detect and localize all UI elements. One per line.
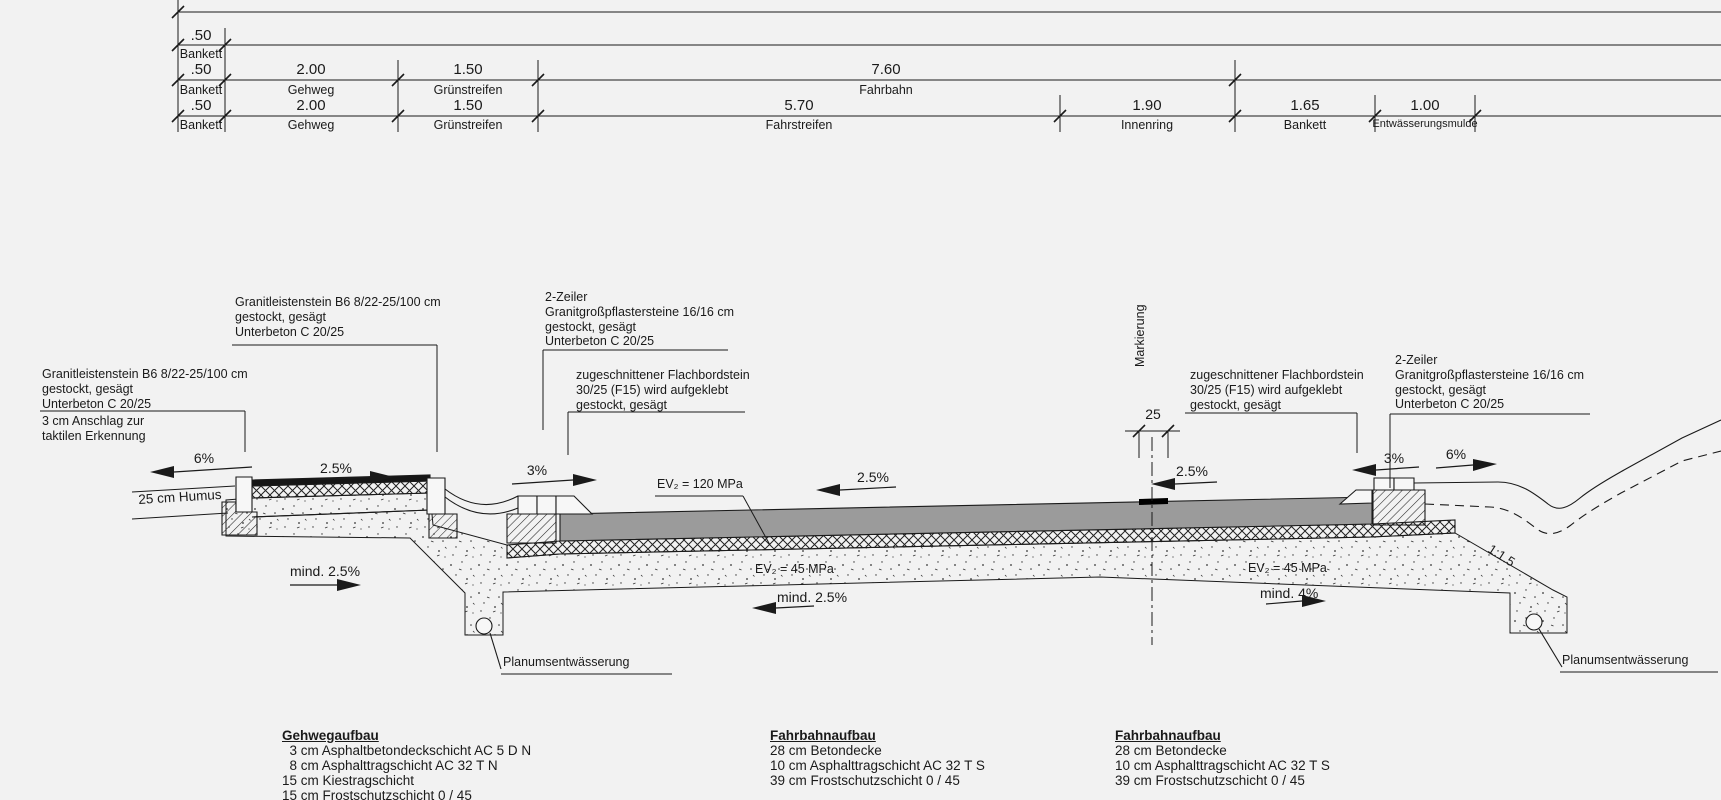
dim-value: 5.70: [784, 97, 813, 114]
dim-label: Bankett: [180, 83, 222, 97]
slope-right-bord: 3%: [1384, 450, 1404, 466]
slope-right-bankett: 6%: [1446, 446, 1466, 462]
dim-value: 1.50: [453, 97, 482, 114]
dim-value: .50: [191, 27, 212, 44]
buildup-fahrbahn-2: Fahrbahnaufbau28 cm Betondecke 10 cm Asp…: [1115, 699, 1330, 800]
dim-label: Grünstreifen: [434, 118, 503, 132]
annotation-ev2-45-left: EV₂ = 45 MPa: [755, 562, 834, 577]
slope-left-bankett: 6%: [194, 450, 214, 466]
dim-label: Bankett: [1284, 118, 1326, 132]
dim-label: Innenring: [1121, 118, 1173, 132]
annotation-granit-left-upper: Granitleistenstein B6 8/22-25/100 cm ges…: [235, 295, 441, 339]
dim-value: 2.00: [296, 61, 325, 78]
annotation-flachbordstein-left: zugeschnittener Flachbordstein 30/25 (F1…: [576, 368, 750, 412]
buildup-lines: 28 cm Betondecke 10 cm Asphalttragschich…: [770, 743, 985, 788]
dim-label: Gehweg: [288, 118, 335, 132]
buildup-lines: 28 cm Betondecke 10 cm Asphalttragschich…: [1115, 743, 1330, 788]
annotation-anschlag: 3 cm Anschlag zur taktilen Erkennung: [42, 414, 146, 444]
buildup-lines: 3 cm Asphaltbetondeckschicht AC 5 D N 8 …: [282, 743, 531, 800]
slope-under-gehweg: mind. 2.5%: [290, 563, 360, 579]
dim-value: 1.65: [1290, 97, 1319, 114]
dim-value: .50: [191, 61, 212, 78]
dim-value: 1.00: [1410, 97, 1439, 114]
buildup-title: Fahrbahnaufbau: [1115, 729, 1330, 744]
dim-label: Fahrstreifen: [766, 118, 833, 132]
buildup-title: Fahrbahnaufbau: [770, 729, 985, 744]
annotation-markierung: Markierung: [1133, 297, 1147, 367]
slope-fahrbahn-left: 2.5%: [857, 469, 889, 485]
road-cross-section-drawing: .50 Bankett .50 2.00 1.50 7.60 Bankett G…: [0, 0, 1721, 800]
annotation-ev2-45-right: EV₂ = 45 MPa: [1248, 561, 1327, 576]
dim-label: Entwässerungsmulde: [1372, 118, 1477, 130]
slope-fahrbahn-right: 2.5%: [1176, 463, 1208, 479]
buildup-gehweg: Gehwegaufbau 3 cm Asphaltbetondeckschich…: [282, 699, 531, 800]
annotation-ev2-120: EV₂ = 120 MPa: [657, 477, 743, 492]
dim-value: 2.00: [296, 97, 325, 114]
dim-value: .50: [191, 97, 212, 114]
slope-rinne: 3%: [527, 462, 547, 478]
annotation-planum-right: Planumsentwässerung: [1562, 653, 1688, 668]
dim-value: 1.50: [453, 61, 482, 78]
dim-value: 7.60: [871, 61, 900, 78]
slope-under-fahrbahn-right: mind. 4%: [1260, 585, 1318, 601]
dim-label: Bankett: [180, 47, 222, 61]
dim-label: Gehweg: [288, 83, 335, 97]
markierung-width-dim: 25: [1145, 406, 1161, 422]
annotation-zweizeiler-left: 2-Zeiler Granitgroßpflastersteine 16/16 …: [545, 290, 734, 349]
annotation-planum-left: Planumsentwässerung: [503, 655, 629, 670]
annotation-flachbordstein-right: zugeschnittener Flachbordstein 30/25 (F1…: [1190, 368, 1364, 412]
buildup-fahrbahn-1: Fahrbahnaufbau28 cm Betondecke 10 cm Asp…: [770, 699, 985, 800]
annotation-granit-left-lower: Granitleistenstein B6 8/22-25/100 cm ges…: [42, 367, 248, 411]
annotation-zweizeiler-right: 2-Zeiler Granitgroßpflastersteine 16/16 …: [1395, 353, 1584, 412]
buildup-title: Gehwegaufbau: [282, 729, 531, 744]
dim-value: 1.90: [1132, 97, 1161, 114]
dim-label: Grünstreifen: [434, 83, 503, 97]
slope-gehweg: 2.5%: [320, 460, 352, 476]
slope-under-fahrbahn-left: mind. 2.5%: [777, 589, 847, 605]
dim-label: Bankett: [180, 118, 222, 132]
dim-label: Fahrbahn: [859, 83, 913, 97]
